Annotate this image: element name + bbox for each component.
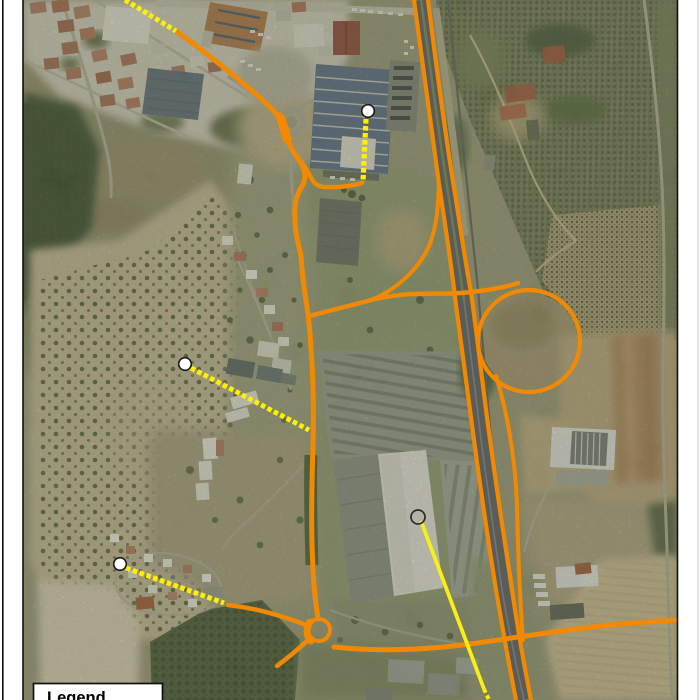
svg-text:Legend: Legend [47,689,106,700]
